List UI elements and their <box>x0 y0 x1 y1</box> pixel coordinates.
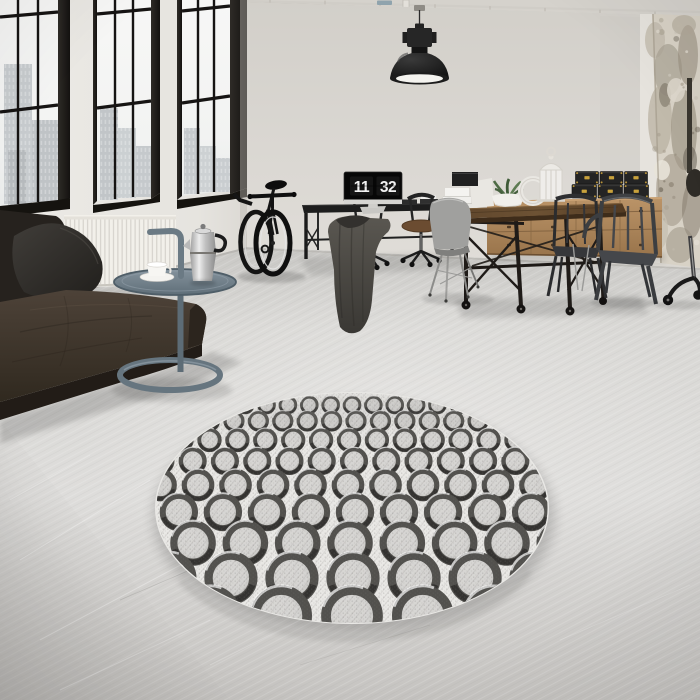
scene-canvas: 11 32 <box>0 0 700 700</box>
photo-vignette <box>0 0 700 700</box>
scene-photo: 11 32 <box>0 0 700 700</box>
